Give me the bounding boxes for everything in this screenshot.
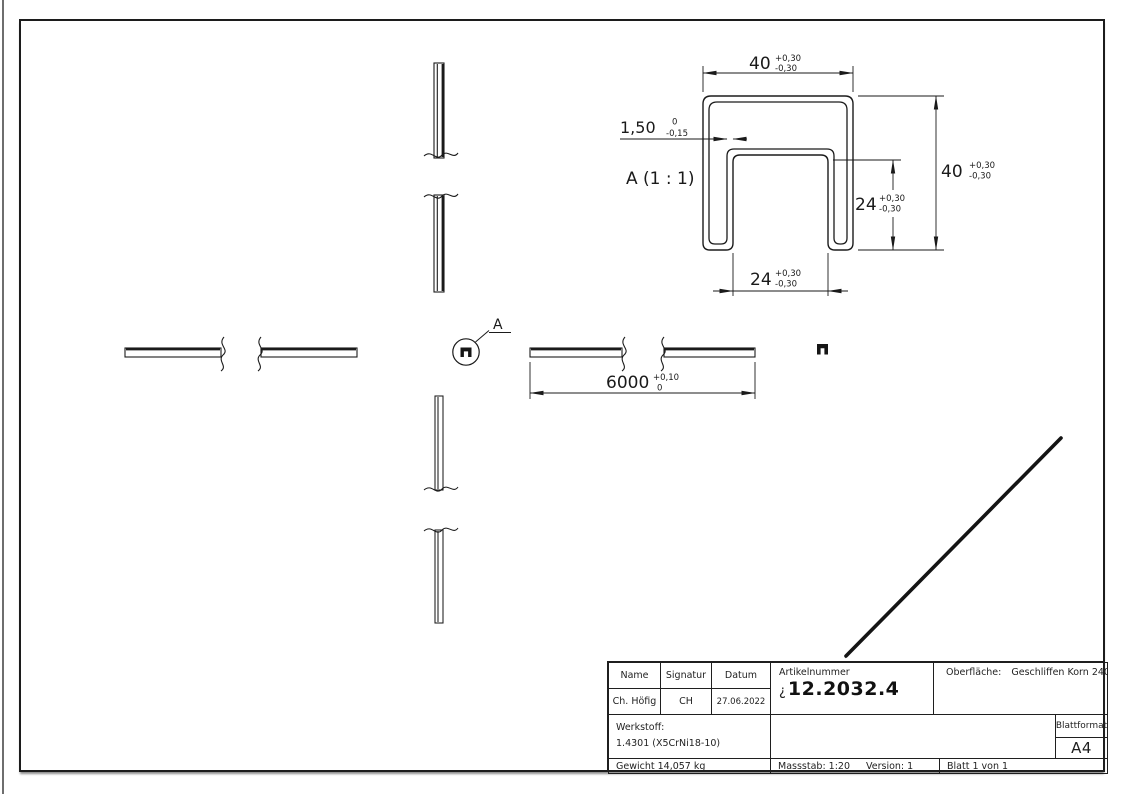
channel-section-icon [817, 344, 828, 355]
dim-height-tol-minus: -0,30 [969, 172, 991, 182]
blatt-value: Blatt 1 von 1 [947, 761, 1008, 772]
signatur-value: CH [679, 696, 693, 707]
side-view-lower-broken [424, 396, 458, 623]
blatt-cell: Blatt 1 von 1 [939, 758, 1108, 774]
werkstoff-cell: Werkstoff: 1.4301 (X5CrNi18-10) [608, 714, 771, 759]
profile-inner-contour [709, 102, 847, 244]
front-view-broken [424, 63, 458, 292]
oberflaeche-value: Geschliffen Korn 240 [1011, 667, 1108, 678]
isometric-view [845, 438, 1061, 658]
empty-cell [770, 714, 1056, 759]
detail-profile-icon [461, 348, 472, 358]
blattformat-value-cell: A4 [1055, 737, 1108, 759]
name-header: Name [620, 670, 648, 681]
break-line [258, 337, 262, 371]
profile-outer-contour [703, 96, 853, 250]
massstab-value: Massstab: 1:20 [778, 761, 850, 772]
name-value-cell: Ch. Höfig [608, 688, 661, 715]
artikelnummer-cell: Artikelnummer ¿ 12.2032.4 [770, 662, 934, 715]
break-line [661, 337, 665, 371]
datum-header: Datum [725, 670, 757, 681]
oberflaeche-cell: Oberfläche: Geschliffen Korn 240 [933, 662, 1108, 715]
dim-inner-height-value: 24 [855, 195, 877, 215]
blattformat-label-cell: Blattformat [1055, 714, 1108, 738]
dim-inner-height-tol-plus: +0,30 [879, 194, 905, 204]
blattformat-label: Blattformat [1056, 721, 1107, 731]
break-line [622, 337, 626, 371]
side-view-length: 6000 +0,10 0 [530, 337, 828, 399]
dim-inner-width-tol-minus: -0,30 [775, 280, 797, 290]
dim-length-tol-minus: 0 [657, 384, 662, 394]
artikelnummer-value: 12.2032.4 [788, 678, 899, 700]
signatur-value-cell: CH [660, 688, 712, 715]
detail-view-a: 40 +0,30 -0,30 1,50 0 -0,15 A (1 : 1) 40… [620, 54, 995, 296]
oberflaeche-label: Oberfläche: [946, 667, 1001, 678]
dim-thickness-value: 1,50 [620, 118, 656, 137]
dim-width-tol-plus: +0,30 [775, 54, 801, 64]
artikelnummer-prefix: ¿ [779, 684, 786, 699]
werkstoff-label: Werkstoff: [616, 720, 770, 736]
dim-thickness-tol-minus: -0,15 [666, 129, 688, 139]
datum-header-cell: Datum [711, 662, 771, 689]
detail-callout: A [453, 317, 511, 365]
blattformat-value: A4 [1071, 739, 1092, 757]
signatur-header: Signatur [666, 670, 706, 681]
dim-inner-width-tol-plus: +0,30 [775, 269, 801, 279]
datum-value: 27.06.2022 [717, 697, 766, 707]
dim-length-value: 6000 [606, 373, 649, 393]
dim-thickness-tol-plus: 0 [672, 118, 677, 128]
detail-view-title: A (1 : 1) [626, 169, 694, 189]
dim-length-tol-plus: +0,10 [653, 373, 679, 383]
version-value: Version: 1 [866, 761, 913, 772]
dim-height-value: 40 [941, 162, 963, 182]
break-line [221, 337, 225, 371]
artikelnummer-label: Artikelnummer [779, 667, 850, 678]
werkstoff-value: 1.4301 (X5CrNi18-10) [616, 736, 770, 752]
datum-value-cell: 27.06.2022 [711, 688, 771, 715]
detail-callout-label: A [493, 317, 503, 333]
dim-inner-height-tol-minus: -0,30 [879, 205, 901, 215]
name-header-cell: Name [608, 662, 661, 689]
gewicht-value: Gewicht 14,057 kg [616, 761, 705, 772]
drawing-sheet: 6000 +0,10 0 A [0, 0, 1123, 794]
massstab-cell: Massstab: 1:20 Version: 1 [770, 758, 940, 774]
dim-height-tol-plus: +0,30 [969, 161, 995, 171]
dim-width-tol-minus: -0,30 [775, 64, 797, 74]
dim-height [858, 96, 944, 250]
gewicht-cell: Gewicht 14,057 kg [608, 758, 771, 774]
signatur-header-cell: Signatur [660, 662, 712, 689]
name-value: Ch. Höfig [613, 696, 657, 707]
dim-width-value: 40 [749, 54, 771, 74]
dim-inner-width-value: 24 [750, 270, 772, 290]
title-block: Name Signatur Datum Ch. Höfig CH 27.06.2… [607, 661, 1105, 772]
top-view-left-broken [125, 337, 357, 371]
